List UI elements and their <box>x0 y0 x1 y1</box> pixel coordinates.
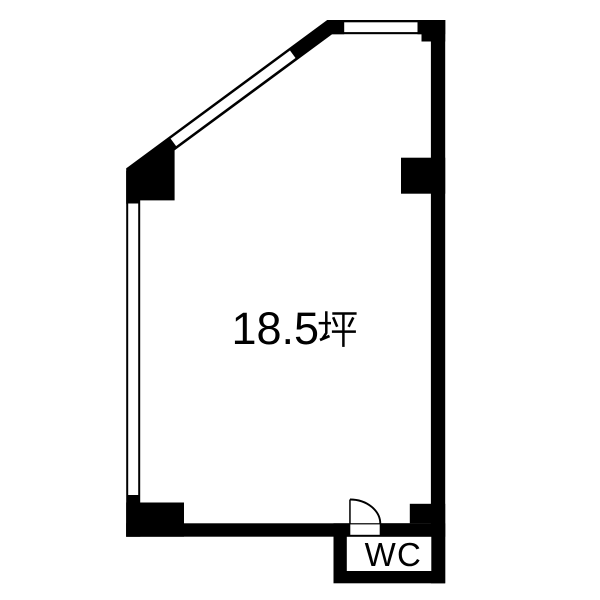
svg-text:18.5: 18.5 <box>232 303 320 354</box>
svg-text:WC: WC <box>365 536 422 573</box>
